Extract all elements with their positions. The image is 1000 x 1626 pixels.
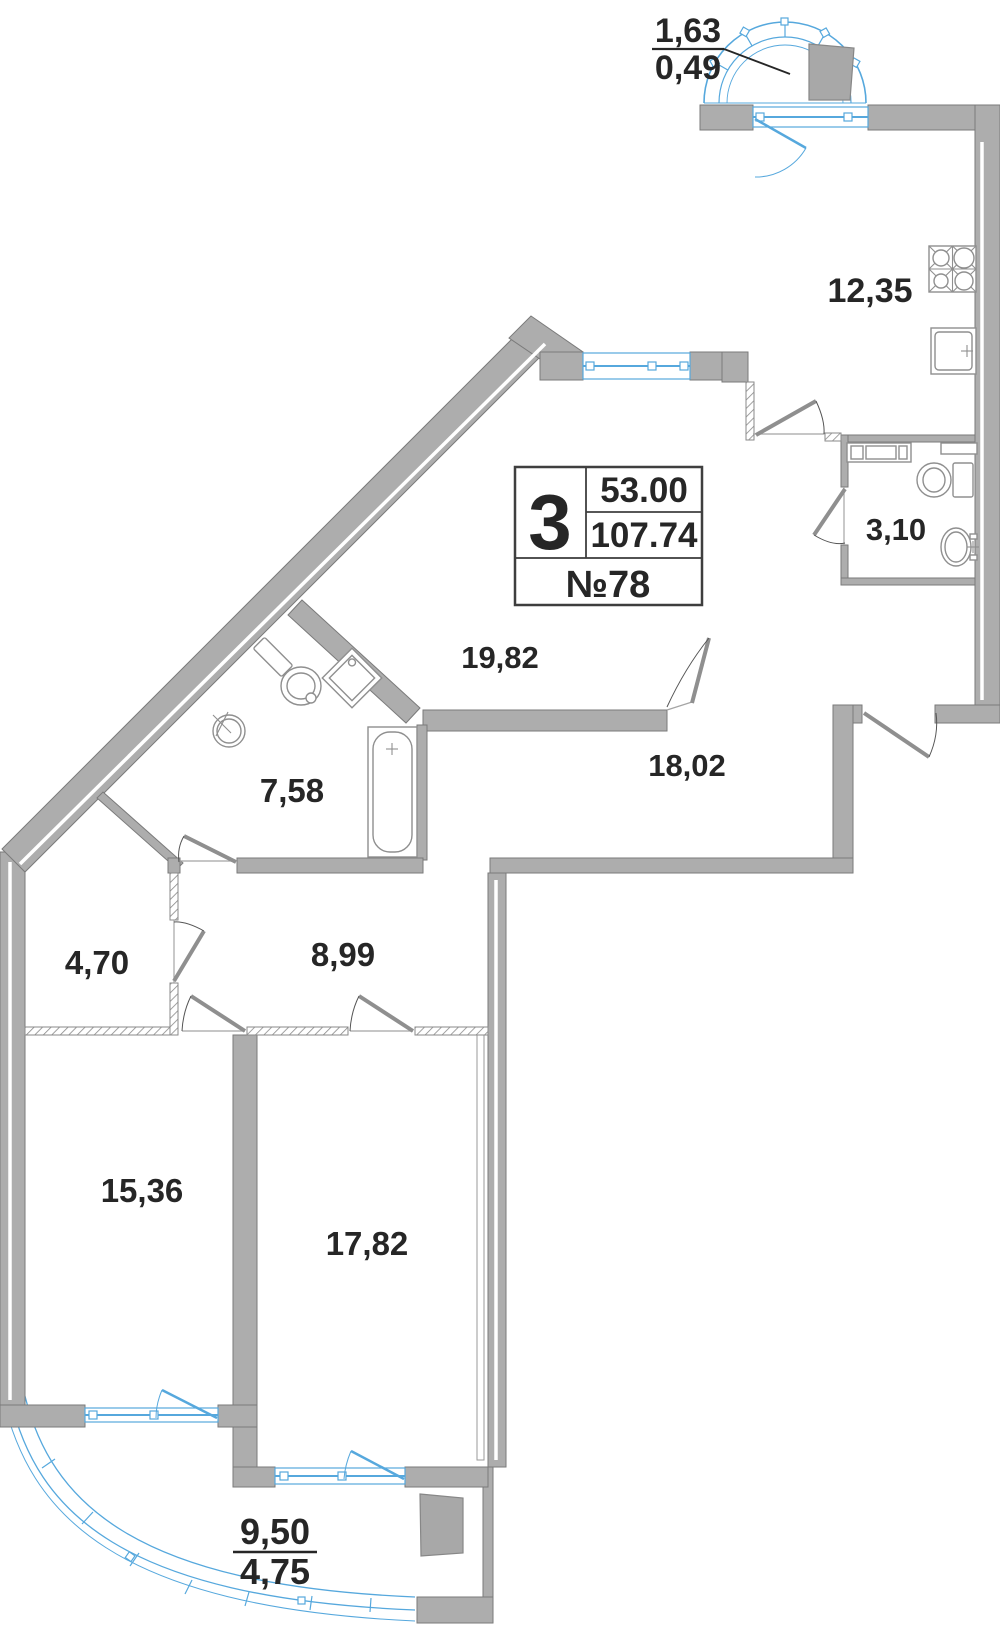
info-total-area: 107.74 bbox=[590, 516, 698, 555]
balcony-top-glazing bbox=[704, 18, 866, 103]
bath-toilet-icon bbox=[253, 637, 321, 705]
label-bathroom: 7,58 bbox=[260, 772, 324, 809]
stove-icon bbox=[929, 246, 976, 292]
balcony-top-door-leaf bbox=[809, 44, 854, 100]
kitchen-balcony-window bbox=[753, 107, 868, 177]
wc-shelf-icon bbox=[941, 443, 977, 454]
living-room-window bbox=[583, 353, 690, 379]
label-wardrobe: 4,70 bbox=[65, 944, 129, 981]
kitchen-door bbox=[753, 401, 825, 435]
label-wc-small: 3,10 bbox=[866, 512, 926, 547]
balcony-top-area-reduced: 0,49 bbox=[655, 49, 721, 87]
balcony-bottom-area-reduced: 4,75 bbox=[240, 1551, 310, 1592]
bedroom-left-window bbox=[85, 1390, 218, 1422]
label-corridor: 8,99 bbox=[311, 936, 375, 973]
label-kitchen: 12,35 bbox=[827, 272, 912, 310]
bathtub-icon bbox=[368, 727, 417, 857]
info-room-count: 3 bbox=[528, 478, 571, 566]
label-living: 19,82 bbox=[461, 640, 539, 675]
wc-washer-icon bbox=[847, 443, 911, 462]
bedroom-right-window bbox=[275, 1451, 405, 1484]
bath-washer-icon bbox=[322, 648, 381, 707]
label-bedroom-right: 17,82 bbox=[326, 1225, 409, 1262]
living-room-door bbox=[667, 638, 709, 710]
wardrobe-door bbox=[174, 920, 204, 983]
bedroom-left-door bbox=[182, 996, 245, 1031]
wc-toilet-icon bbox=[917, 463, 973, 497]
bedroom-right-door bbox=[350, 996, 413, 1031]
info-living-area: 53.00 bbox=[600, 471, 688, 510]
bathroom-door bbox=[178, 836, 237, 862]
wc-sink-icon bbox=[941, 528, 979, 566]
balcony-bottom-area-full: 9,50 bbox=[240, 1511, 310, 1552]
info-apartment-number: №78 bbox=[566, 564, 651, 606]
balcony-bottom-label: 9,50 4,75 bbox=[233, 1511, 317, 1592]
label-hall: 18,02 bbox=[648, 748, 726, 783]
balcony-bottom-door-leaf bbox=[420, 1494, 463, 1556]
kitchen-sink-icon bbox=[931, 328, 976, 374]
apartment-info-box: 3 53.00 107.74 №78 bbox=[515, 467, 702, 606]
floor-plan: 12,35 3,10 19,82 18,02 7,58 8,99 4,70 15… bbox=[0, 0, 1000, 1626]
balcony-top-area-full: 1,63 bbox=[655, 12, 721, 50]
entry-door bbox=[864, 713, 937, 757]
wc-small-door bbox=[814, 487, 845, 545]
bath-corner-sink-icon bbox=[213, 712, 245, 747]
walls bbox=[0, 105, 1000, 1623]
label-bedroom-left: 15,36 bbox=[101, 1172, 184, 1209]
